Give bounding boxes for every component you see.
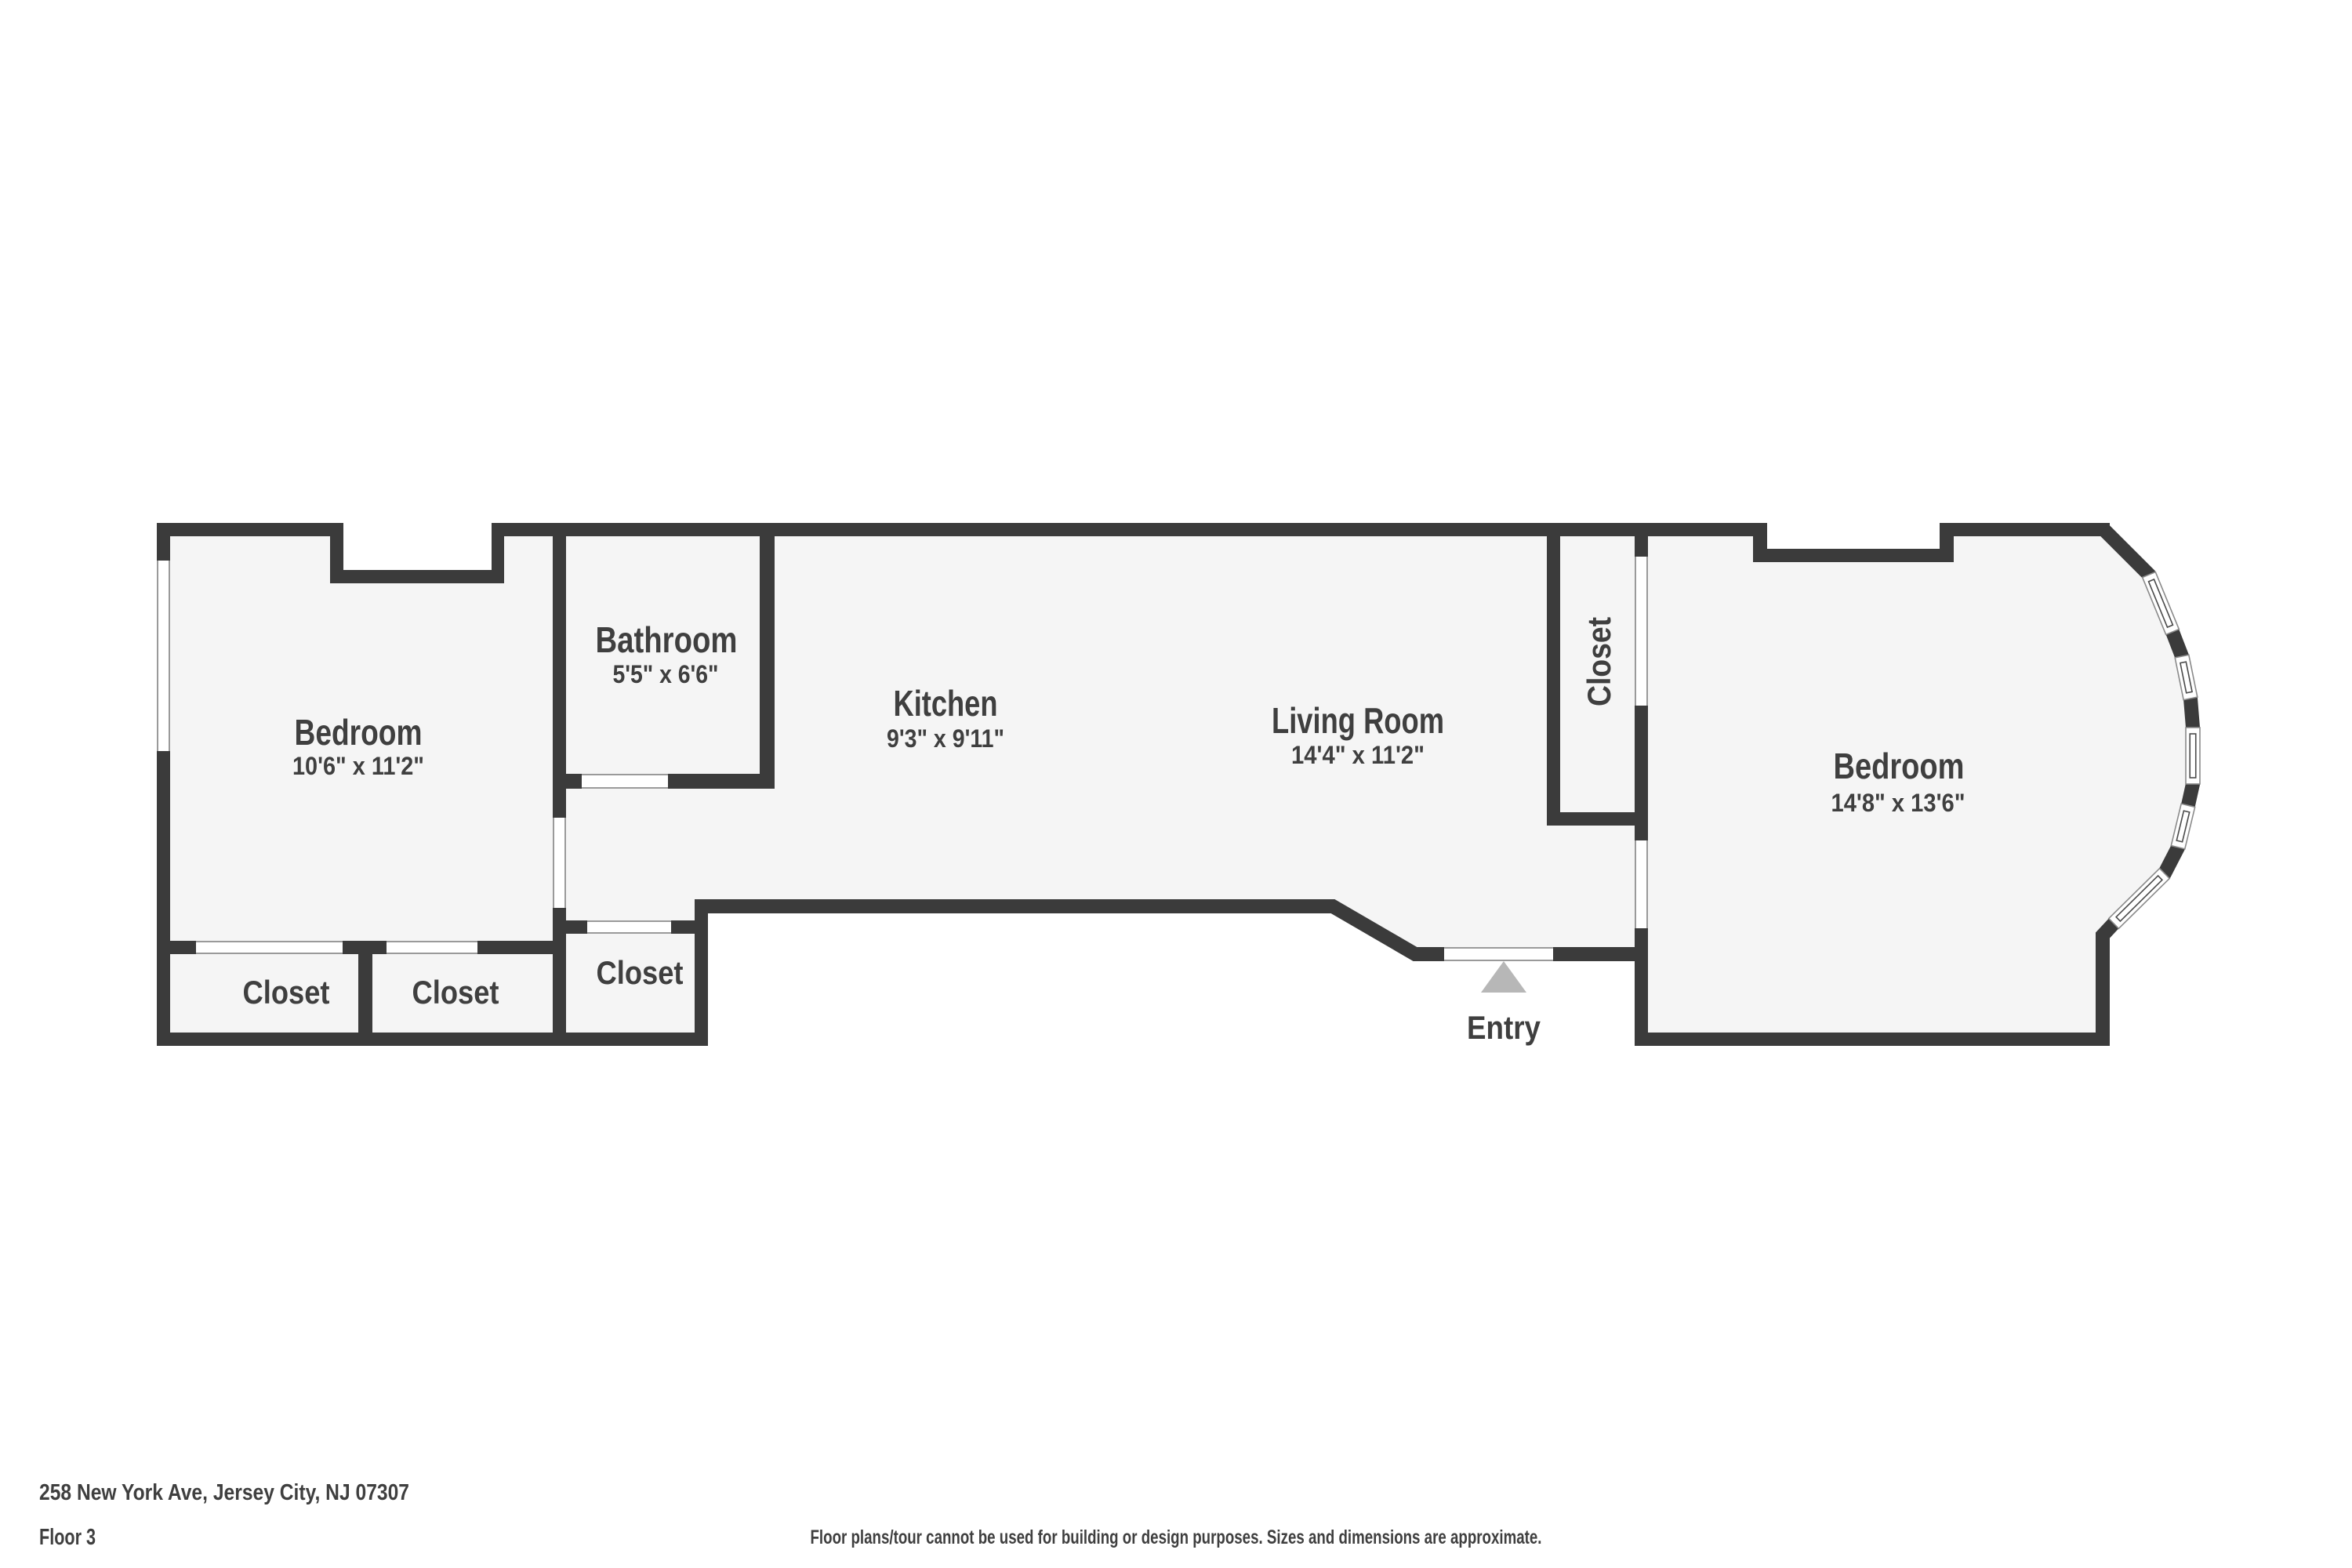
svg-text:Closet: Closet [597, 954, 684, 991]
svg-text:5'5" x 6'6": 5'5" x 6'6" [613, 660, 719, 688]
svg-text:9'3" x 9'11": 9'3" x 9'11" [887, 724, 1004, 753]
svg-text:Floor plans/tour cannot be use: Floor plans/tour cannot be used for buil… [811, 1526, 1542, 1548]
svg-text:Entry: Entry [1467, 1009, 1541, 1046]
svg-text:14'8" x 13'6": 14'8" x 13'6" [1831, 789, 1965, 817]
svg-text:14'4" x 11'2": 14'4" x 11'2" [1291, 741, 1425, 769]
svg-text:Living Room: Living Room [1272, 700, 1444, 741]
svg-text:Kitchen: Kitchen [894, 683, 998, 724]
svg-text:Bedroom: Bedroom [295, 712, 423, 753]
svg-text:10'6" x 11'2": 10'6" x 11'2" [292, 752, 424, 780]
svg-text:Closet: Closet [412, 974, 499, 1011]
svg-text:Bedroom: Bedroom [1834, 746, 1965, 786]
svg-text:Floor 3: Floor 3 [39, 1525, 96, 1550]
svg-text:Bathroom: Bathroom [596, 619, 738, 660]
svg-text:Closet: Closet [1581, 617, 1617, 706]
svg-text:Closet: Closet [243, 974, 330, 1011]
svg-text:258 New York Ave, Jersey City,: 258 New York Ave, Jersey City, NJ 07307 [39, 1480, 409, 1505]
